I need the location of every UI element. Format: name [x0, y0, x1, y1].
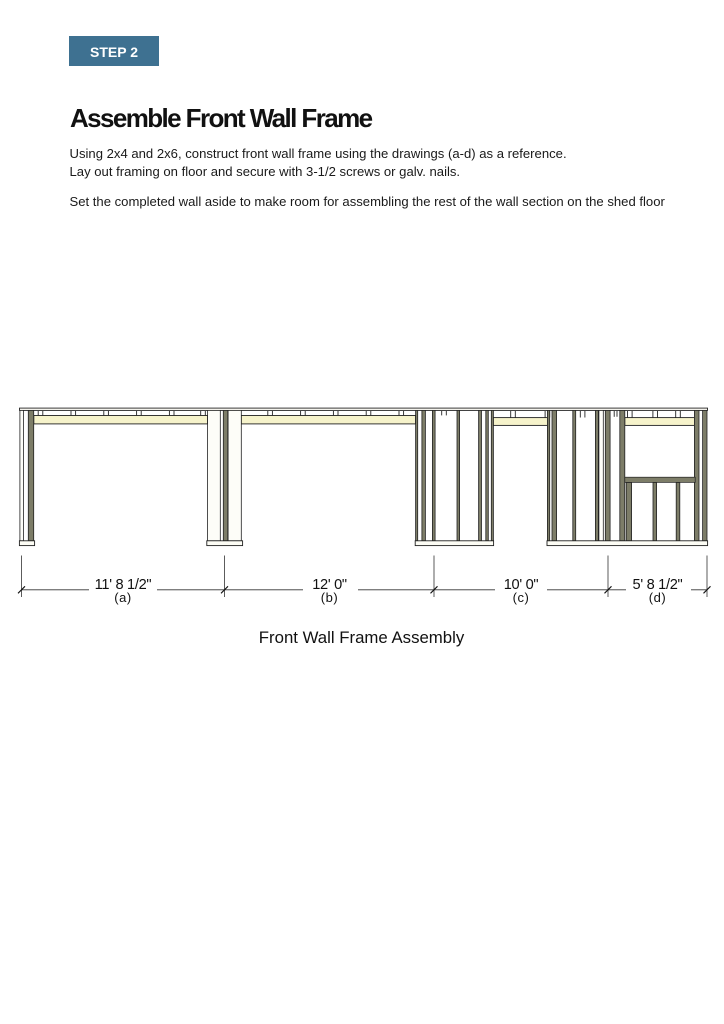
- svg-text:(c): (c): [513, 590, 530, 605]
- svg-text:Front Wall Frame Assembly: Front Wall Frame Assembly: [259, 628, 465, 647]
- svg-text:(a): (a): [114, 590, 131, 605]
- svg-text:(b): (b): [321, 590, 338, 605]
- svg-text:(d): (d): [649, 590, 666, 605]
